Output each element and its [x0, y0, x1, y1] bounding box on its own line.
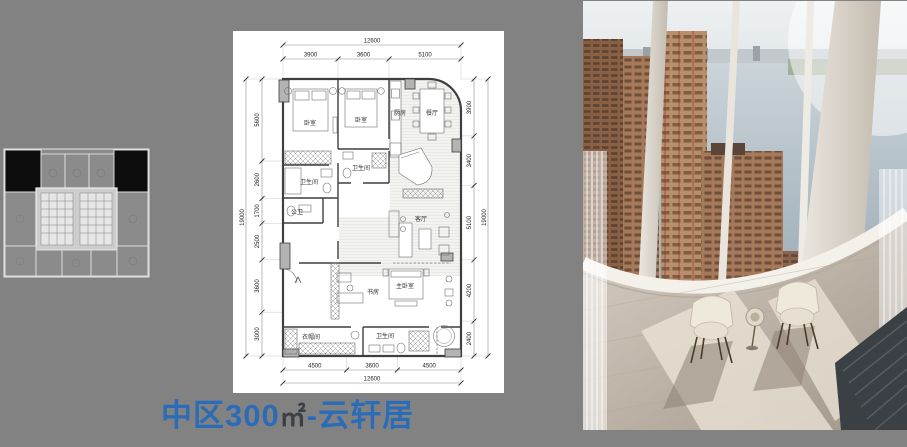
- dim-right-1: 3900: [467, 100, 473, 114]
- keyplan-bottom-units: [5, 246, 148, 276]
- city-view-photo: [583, 1, 907, 430]
- room-label-kitchen: 厨房: [394, 109, 406, 117]
- room-label-living: 客厅: [415, 215, 427, 223]
- dim-top-2: 3600: [357, 53, 371, 59]
- entry-door-arc: [283, 269, 297, 283]
- dim-left-6: 3000: [255, 327, 261, 341]
- dim-top-3: 5100: [418, 53, 432, 59]
- highlighted-unit-left: [5, 150, 41, 192]
- dim-left-5: 3600: [255, 279, 261, 293]
- dim-right-overall: 19000: [482, 208, 488, 225]
- room-label-bedroom1: 卧室: [304, 119, 316, 127]
- dim-right-2: 3400: [467, 153, 473, 167]
- room-label-dining: 餐厅: [426, 109, 438, 117]
- title-sqm-unit: ㎡: [280, 402, 307, 432]
- floor-plan-drawing: 12600 3900 3600 5100 4500 3600 4500 1260…: [233, 31, 504, 393]
- room-label-cloakroom: 衣帽间: [302, 333, 320, 341]
- dim-bottom-1: 4500: [308, 364, 322, 370]
- building-key-plan-drawing: [3, 148, 150, 278]
- highlighted-unit-right: [114, 150, 148, 192]
- room-label-guest-wc: 公卫: [291, 209, 303, 216]
- presentation-slide: 12600 3900 3600 5100 4500 3600 4500 1260…: [0, 0, 907, 447]
- dim-bottom-3: 4500: [423, 364, 437, 370]
- room-label-bath-bottom: 卫生间: [376, 332, 394, 340]
- room-label-bedroom2: 卧室: [355, 116, 367, 124]
- dim-right-5: 2400: [467, 331, 473, 345]
- dim-left-4: 2500: [255, 234, 261, 248]
- room-label-study: 书房: [367, 288, 379, 296]
- dim-left-overall: 19000: [240, 208, 246, 225]
- page-title: 中区300㎡-云轩居: [161, 399, 414, 434]
- dim-bottom-overall: 12600: [364, 377, 381, 383]
- room-label-bath-left: 卫生间: [300, 178, 318, 186]
- apartment-floor-plan: 12600 3900 3600 5100 4500 3600 4500 1260…: [233, 31, 504, 393]
- dim-right-4: 4200: [467, 283, 473, 297]
- title-area-text: 中区300: [161, 398, 280, 433]
- dim-top-overall: 12600: [364, 39, 381, 45]
- keyplan-top-units: [5, 150, 148, 192]
- dim-left-2: 2600: [255, 172, 261, 186]
- dim-right-3: 5100: [467, 215, 473, 229]
- dim-left-1: 5600: [255, 113, 261, 127]
- keyplan-core: [36, 188, 117, 250]
- city-view-render: [583, 1, 907, 430]
- room-label-master-bedroom: 主卧室: [396, 282, 414, 290]
- dim-left-3: 1700: [255, 204, 261, 218]
- building-key-plan: [3, 148, 150, 278]
- title-unit-name: -云轩居: [307, 398, 414, 433]
- room-label-bath2: 卫生间: [352, 164, 370, 172]
- dim-bottom-2: 3600: [365, 364, 379, 370]
- dim-top-1: 3900: [304, 53, 318, 59]
